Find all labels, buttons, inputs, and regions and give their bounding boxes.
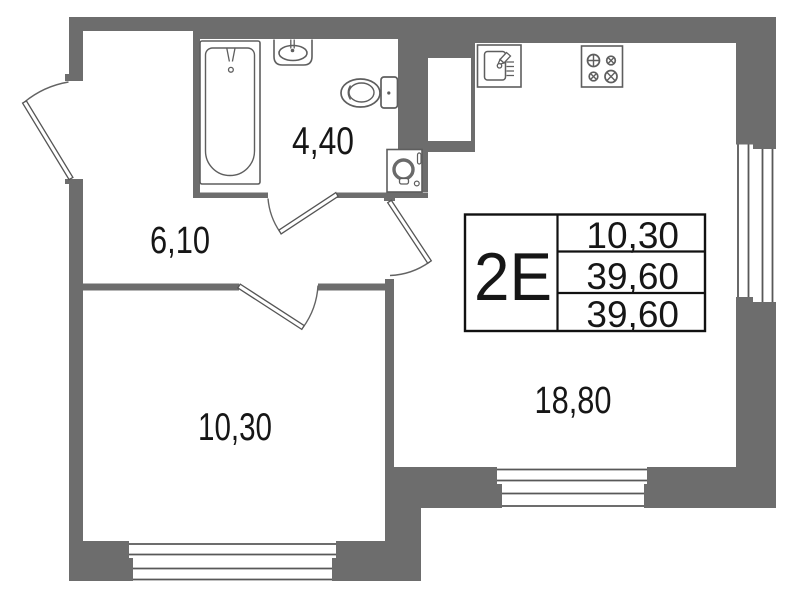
- svg-text:2E: 2E: [474, 239, 552, 315]
- svg-text:10,30: 10,30: [198, 406, 272, 449]
- svg-text:10,30: 10,30: [586, 215, 679, 256]
- svg-text:4,40: 4,40: [292, 120, 354, 163]
- svg-text:6,10: 6,10: [150, 220, 210, 262]
- svg-text:39,60: 39,60: [586, 256, 679, 297]
- svg-text:18,80: 18,80: [535, 380, 612, 422]
- svg-text:39,60: 39,60: [586, 294, 679, 335]
